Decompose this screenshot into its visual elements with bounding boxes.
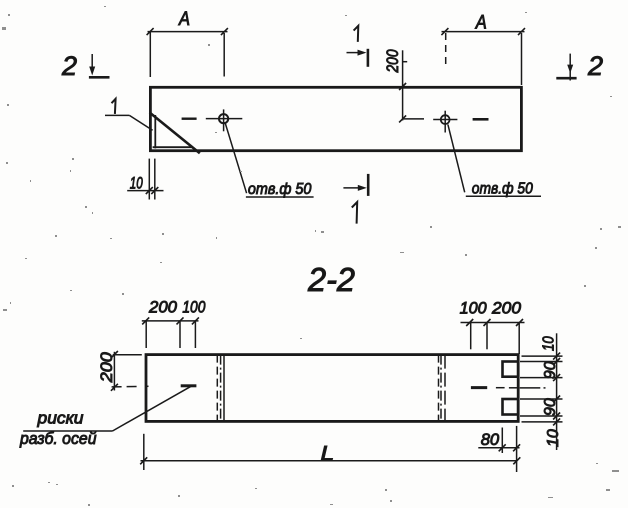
svg-text:L: L xyxy=(321,443,335,465)
svg-text:2-2: 2-2 xyxy=(307,261,355,298)
svg-text:200: 200 xyxy=(491,298,522,317)
svg-text:100: 100 xyxy=(182,298,205,317)
svg-text:200: 200 xyxy=(148,298,178,317)
svg-text:2: 2 xyxy=(61,51,77,81)
svg-text:2: 2 xyxy=(587,51,603,81)
svg-text:10: 10 xyxy=(541,336,558,351)
svg-text:A: A xyxy=(475,12,487,33)
svg-text:10: 10 xyxy=(130,174,143,193)
svg-text:200: 200 xyxy=(383,49,402,73)
svg-text:100: 100 xyxy=(460,298,488,317)
svg-text:разб. осей: разб. осей xyxy=(19,429,97,448)
svg-text:отв.ф 50: отв.ф 50 xyxy=(248,181,312,198)
svg-text:риски: риски xyxy=(36,409,84,428)
svg-text:отв.ф 50: отв.ф 50 xyxy=(472,181,533,198)
svg-text:10: 10 xyxy=(545,429,562,447)
svg-text:80: 80 xyxy=(481,430,500,449)
svg-text:A: A xyxy=(178,9,190,30)
